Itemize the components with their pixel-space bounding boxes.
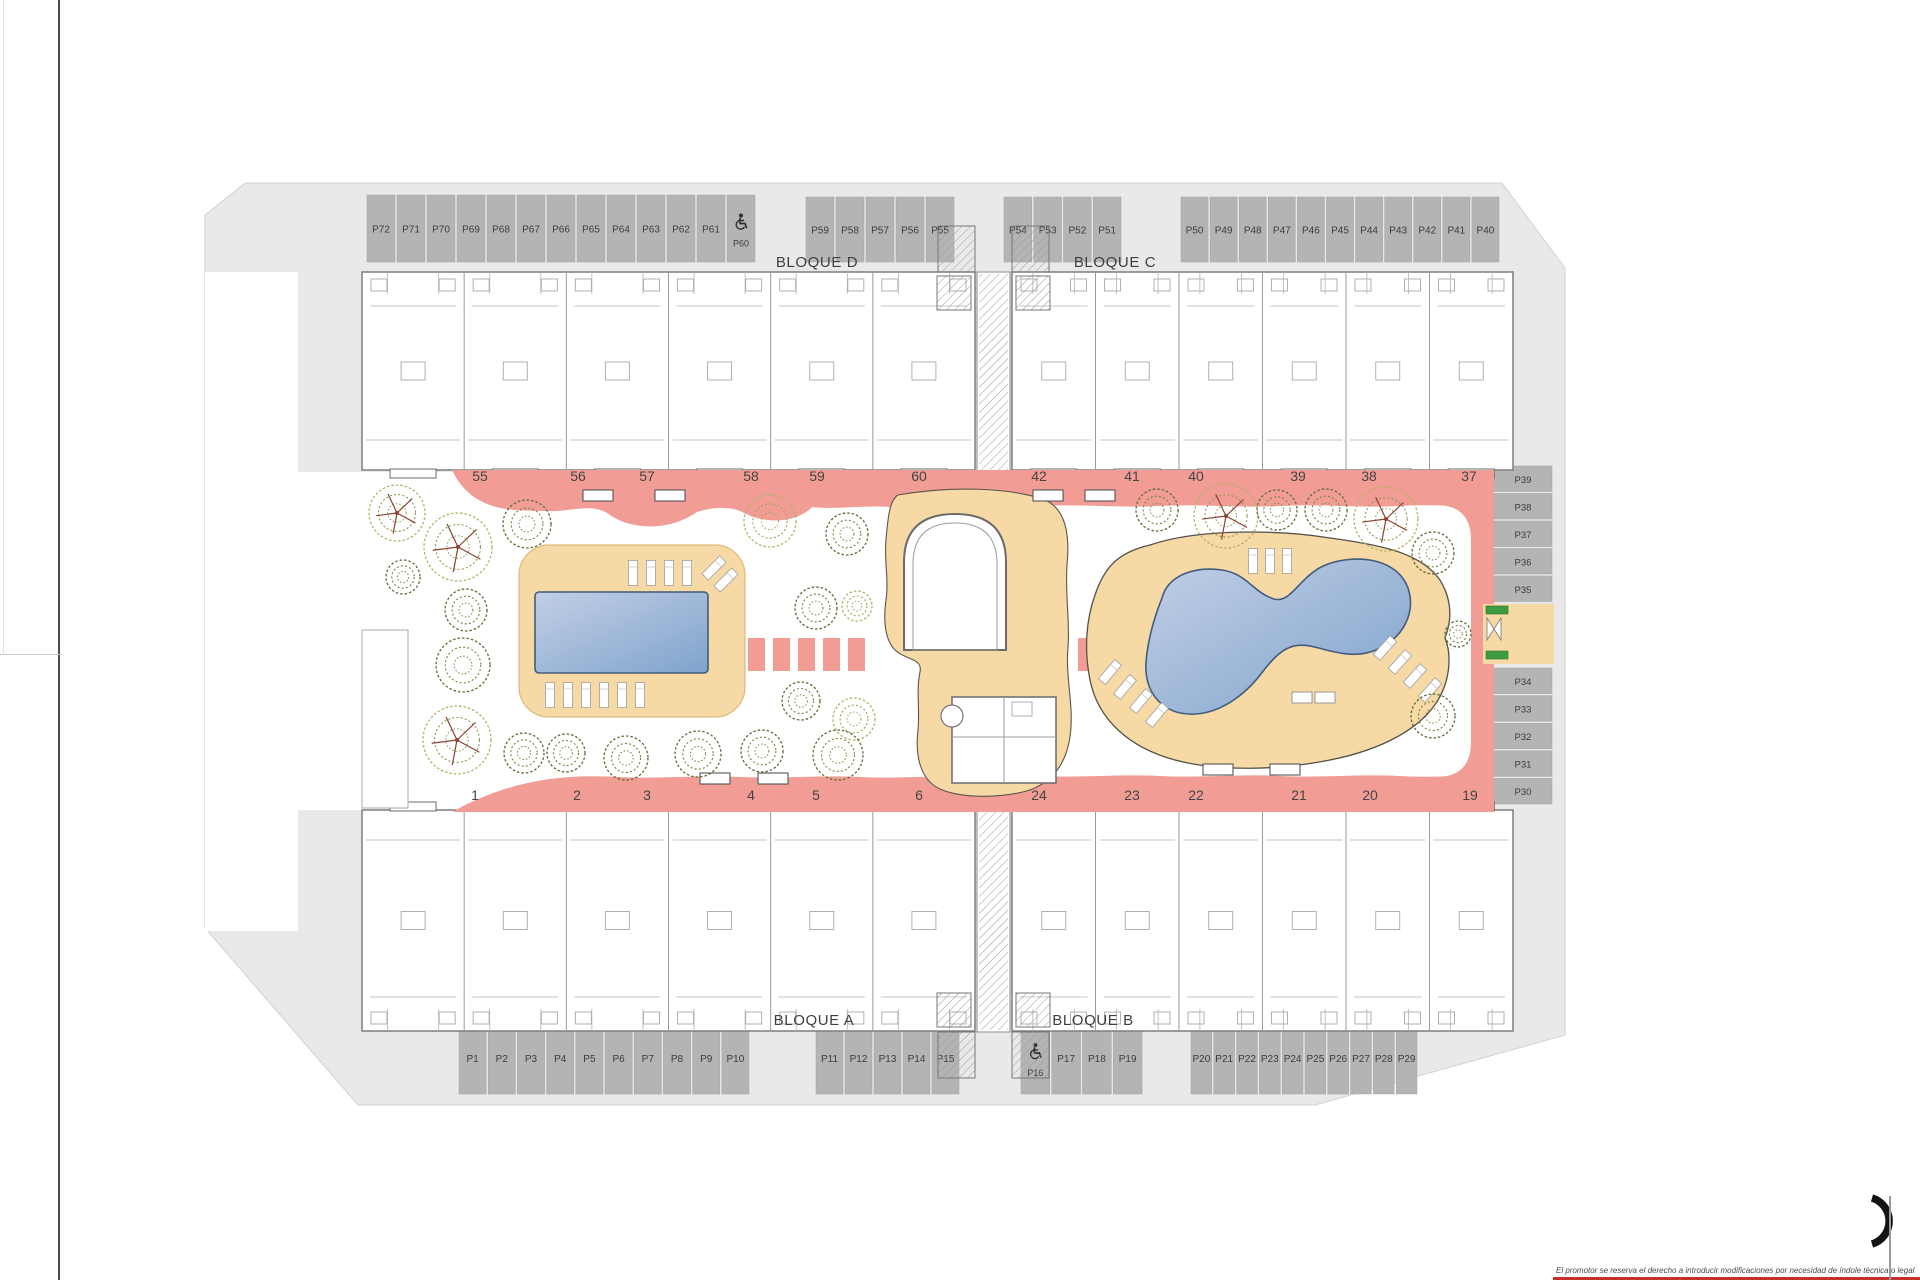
sun-lounger	[546, 683, 555, 708]
unit-number-bottom: 21	[1291, 787, 1307, 803]
sheet-tick-line	[0, 654, 62, 655]
parking-stall-label: P23	[1261, 1054, 1279, 1065]
stepping-pad	[773, 638, 790, 671]
parking-stall-label: P68	[492, 225, 510, 236]
disclaimer-text: El promotor se reserva el derecho a intr…	[1556, 1266, 1906, 1275]
parking-group: P50P49P48P47P46P45P44P43P42P41P40	[1181, 197, 1499, 262]
building-block	[1012, 802, 1513, 1031]
tree-trunk	[1384, 517, 1388, 521]
parking-stall-label: P11	[821, 1054, 838, 1065]
sun-lounger-bed	[1266, 549, 1275, 574]
unit-number-top: 55	[472, 468, 488, 484]
parking-stall-label: P21	[1215, 1054, 1233, 1065]
parking-stall-label: P64	[612, 225, 630, 236]
block-label-bloque-c: BLOQUE C	[1035, 254, 1195, 271]
parking-stall-label: P57	[871, 226, 889, 237]
garden-area	[205, 805, 298, 931]
parking-stall-label: P1	[466, 1054, 479, 1065]
titleblock-line	[1889, 1196, 1891, 1280]
parking-stall-label: P46	[1302, 226, 1320, 237]
parking-stall-label: P51	[1098, 226, 1116, 237]
parking-stall-label: P6	[612, 1054, 625, 1065]
parking-stall-label: P14	[908, 1054, 926, 1065]
garden-area	[205, 272, 298, 475]
unit-number-bottom: 19	[1462, 787, 1478, 803]
unit-number-bottom: 5	[812, 787, 820, 803]
building-block	[1012, 272, 1513, 478]
unit-number-top: 56	[570, 468, 586, 484]
pool-house-apse	[941, 705, 963, 727]
unit-number-bottom: 6	[915, 787, 923, 803]
parking-stall-label: P29	[1398, 1054, 1416, 1065]
stair-protrusion	[938, 1032, 975, 1078]
parking-stall-label: P10	[727, 1054, 745, 1065]
unit-number-bottom: 22	[1188, 787, 1204, 803]
parking-stall-label: P52	[1068, 226, 1086, 237]
block-label-bloque-d: BLOQUE D	[737, 254, 897, 271]
building-block	[362, 802, 975, 1031]
parking-stall-label: P19	[1119, 1054, 1137, 1065]
stepping-pad	[823, 638, 840, 671]
parking-stall-label: P67	[522, 225, 540, 236]
unit-number-bottom: 3	[643, 787, 651, 803]
sun-lounger-bed	[629, 561, 638, 586]
sheet-faint-line	[3, 0, 4, 655]
stair-core	[937, 276, 971, 310]
sun-lounger-bed	[1249, 549, 1258, 574]
sun-lounger	[1283, 549, 1292, 574]
parking-stall-label: P7	[642, 1054, 655, 1065]
parking-stall-label: P9	[700, 1054, 713, 1065]
sun-lounger	[600, 683, 609, 708]
site-plan-drawing: P72P71P70P69P68P67P66P65P64P63P62P61P60P…	[0, 0, 1920, 1280]
planter-box	[1085, 490, 1115, 501]
parking-stall-label: P30	[1515, 787, 1532, 798]
parking-stall-label: P58	[841, 226, 859, 237]
unit-number-bottom: 2	[573, 787, 581, 803]
passage-stairs	[979, 776, 1008, 1030]
unit-number-bottom: 24	[1031, 787, 1047, 803]
unit-number-bottom: 23	[1124, 787, 1140, 803]
planter-box	[1033, 490, 1063, 501]
tree-trunk	[395, 511, 399, 515]
parking-stall-label: P36	[1515, 557, 1532, 568]
planter-box	[1203, 764, 1233, 775]
parking-stall-label: P63	[642, 225, 660, 236]
tree-trunk	[1224, 514, 1228, 518]
unit-number-bottom: 1	[471, 787, 479, 803]
building-block	[362, 272, 975, 478]
garden-margin-strip	[362, 630, 408, 808]
parking-group: P59P58P57P56P55	[806, 197, 954, 262]
parking-stall-label: P37	[1515, 530, 1532, 541]
parking-stall-label: P28	[1375, 1054, 1393, 1065]
parking-stall-label: P59	[811, 226, 829, 237]
parking-stall-label: P2	[496, 1054, 509, 1065]
sun-lounger-bed	[665, 561, 674, 586]
parking-group-right: P39P38P37P36P35	[1494, 466, 1552, 602]
pool-rectangular	[535, 592, 708, 673]
parking-stall-label: P40	[1477, 226, 1495, 237]
parking-stall-label: P4	[554, 1054, 567, 1065]
parking-stall-label: P25	[1307, 1054, 1325, 1065]
parking-stall-label: P56	[901, 226, 919, 237]
sun-lounger-bed	[683, 561, 692, 586]
parking-stall-label: P43	[1389, 226, 1407, 237]
parking-stall-label: P35	[1515, 585, 1532, 596]
unit-number-bottom: 4	[747, 787, 755, 803]
parking-stall-label: P13	[879, 1054, 897, 1065]
parking-stall-label: P20	[1193, 1054, 1211, 1065]
parking-stall-label: P17	[1057, 1054, 1075, 1065]
parking-stall-label: P24	[1284, 1054, 1302, 1065]
sun-lounger-flat	[1292, 692, 1312, 703]
parking-stall-label: P65	[582, 225, 600, 236]
sun-lounger-bed	[636, 683, 645, 708]
parking-stall-label: P38	[1515, 502, 1532, 513]
parking-stall-label: P41	[1447, 226, 1465, 237]
unit-number-top: 41	[1124, 468, 1140, 484]
sun-lounger-bed	[647, 561, 656, 586]
parking-stall-label: P69	[462, 225, 480, 236]
planter-box	[655, 490, 685, 501]
sun-lounger	[629, 561, 638, 586]
block-label-bloque-a: BLOQUE A	[734, 1012, 894, 1029]
parking-stall-label: P71	[402, 225, 420, 236]
stair-protrusion	[938, 226, 975, 272]
unit-number-top: 58	[743, 468, 759, 484]
stair-core	[937, 993, 971, 1027]
parking-stall-label: P32	[1515, 732, 1532, 743]
stair-core	[1016, 276, 1050, 310]
unit-number-top: 37	[1461, 468, 1477, 484]
unit-number-top: 40	[1188, 468, 1204, 484]
unit-number-top: 57	[639, 468, 655, 484]
planter-box	[758, 773, 788, 784]
entrance-sign	[1486, 651, 1508, 659]
parking-stall-label: P34	[1515, 677, 1532, 688]
unit-number-top: 38	[1361, 468, 1377, 484]
stair-protrusion	[1012, 1032, 1049, 1078]
unit-number-top: 39	[1290, 468, 1306, 484]
parking-stall-label: P18	[1088, 1054, 1106, 1065]
tree-trunk	[456, 545, 460, 549]
sun-lounger	[1249, 549, 1258, 574]
unit-number-top: 42	[1031, 468, 1047, 484]
sun-lounger	[665, 561, 674, 586]
parking-group: P72P71P70P69P68P67P66P65P64P63P62P61P60	[367, 195, 755, 262]
parking-stall-label: P61	[702, 225, 720, 236]
sheet-edge-line	[58, 0, 60, 1280]
parking-stall-label: P39	[1515, 475, 1532, 486]
entrance-sign	[1486, 606, 1508, 614]
sun-lounger	[582, 683, 591, 708]
sun-lounger	[618, 683, 627, 708]
parking-stall-label: P62	[672, 225, 690, 236]
unit-number-bottom: 20	[1362, 787, 1378, 803]
parking-stall-label: P42	[1418, 226, 1436, 237]
stepping-pad	[748, 638, 765, 671]
parking-stall-label: P48	[1244, 226, 1262, 237]
parking-stall-label: P26	[1329, 1054, 1347, 1065]
sun-lounger	[564, 683, 573, 708]
parking-stall-label: P72	[372, 225, 390, 236]
sun-lounger-bed	[618, 683, 627, 708]
parking-stall-label: P50	[1186, 226, 1204, 237]
parking-stall-label: P66	[552, 225, 570, 236]
parking-stall-label: P60	[733, 239, 749, 249]
stepping-pad	[848, 638, 865, 671]
parking-stall-label: P5	[583, 1054, 596, 1065]
parking-stall-label: P22	[1238, 1054, 1256, 1065]
sun-lounger-bed	[1283, 549, 1292, 574]
sun-lounger-bed	[600, 683, 609, 708]
parking-stall-label: P27	[1352, 1054, 1370, 1065]
parking-stall-label: P12	[850, 1054, 868, 1065]
sun-lounger-flat	[1315, 692, 1335, 703]
wheelchair-head	[739, 214, 743, 218]
tree-trunk	[455, 738, 459, 742]
block-label-bloque-b: BLOQUE B	[1013, 1012, 1173, 1029]
sun-lounger	[647, 561, 656, 586]
planter-box	[1270, 764, 1300, 775]
parking-stall-label: P3	[525, 1054, 538, 1065]
parking-stall-label: P49	[1215, 226, 1233, 237]
sun-lounger	[683, 561, 692, 586]
sun-lounger-bed	[582, 683, 591, 708]
site-plan-page: P72P71P70P69P68P67P66P65P64P63P62P61P60P…	[0, 0, 1920, 1280]
parking-stall-label: P33	[1515, 704, 1532, 715]
sun-lounger-bed	[546, 683, 555, 708]
unit-number-top: 60	[911, 468, 927, 484]
logo-fragment	[1872, 1198, 1889, 1244]
sun-lounger	[636, 683, 645, 708]
balcony	[390, 469, 436, 478]
sun-lounger	[1266, 549, 1275, 574]
sun-lounger-bed	[564, 683, 573, 708]
parking-stall-label: P47	[1273, 226, 1291, 237]
parking-stall-label: P70	[432, 225, 450, 236]
parking-stall-label: P31	[1515, 760, 1532, 771]
parking-group-right: P34P33P32P31P30	[1494, 668, 1552, 804]
parking-stall-label: P44	[1360, 226, 1378, 237]
parking-stall-label: P8	[671, 1054, 684, 1065]
parking-stall-label: P45	[1331, 226, 1349, 237]
arch-structure	[904, 514, 1006, 650]
stepping-pad	[798, 638, 815, 671]
planter-box	[583, 490, 613, 501]
unit-number-top: 59	[809, 468, 825, 484]
planter-box	[700, 773, 730, 784]
